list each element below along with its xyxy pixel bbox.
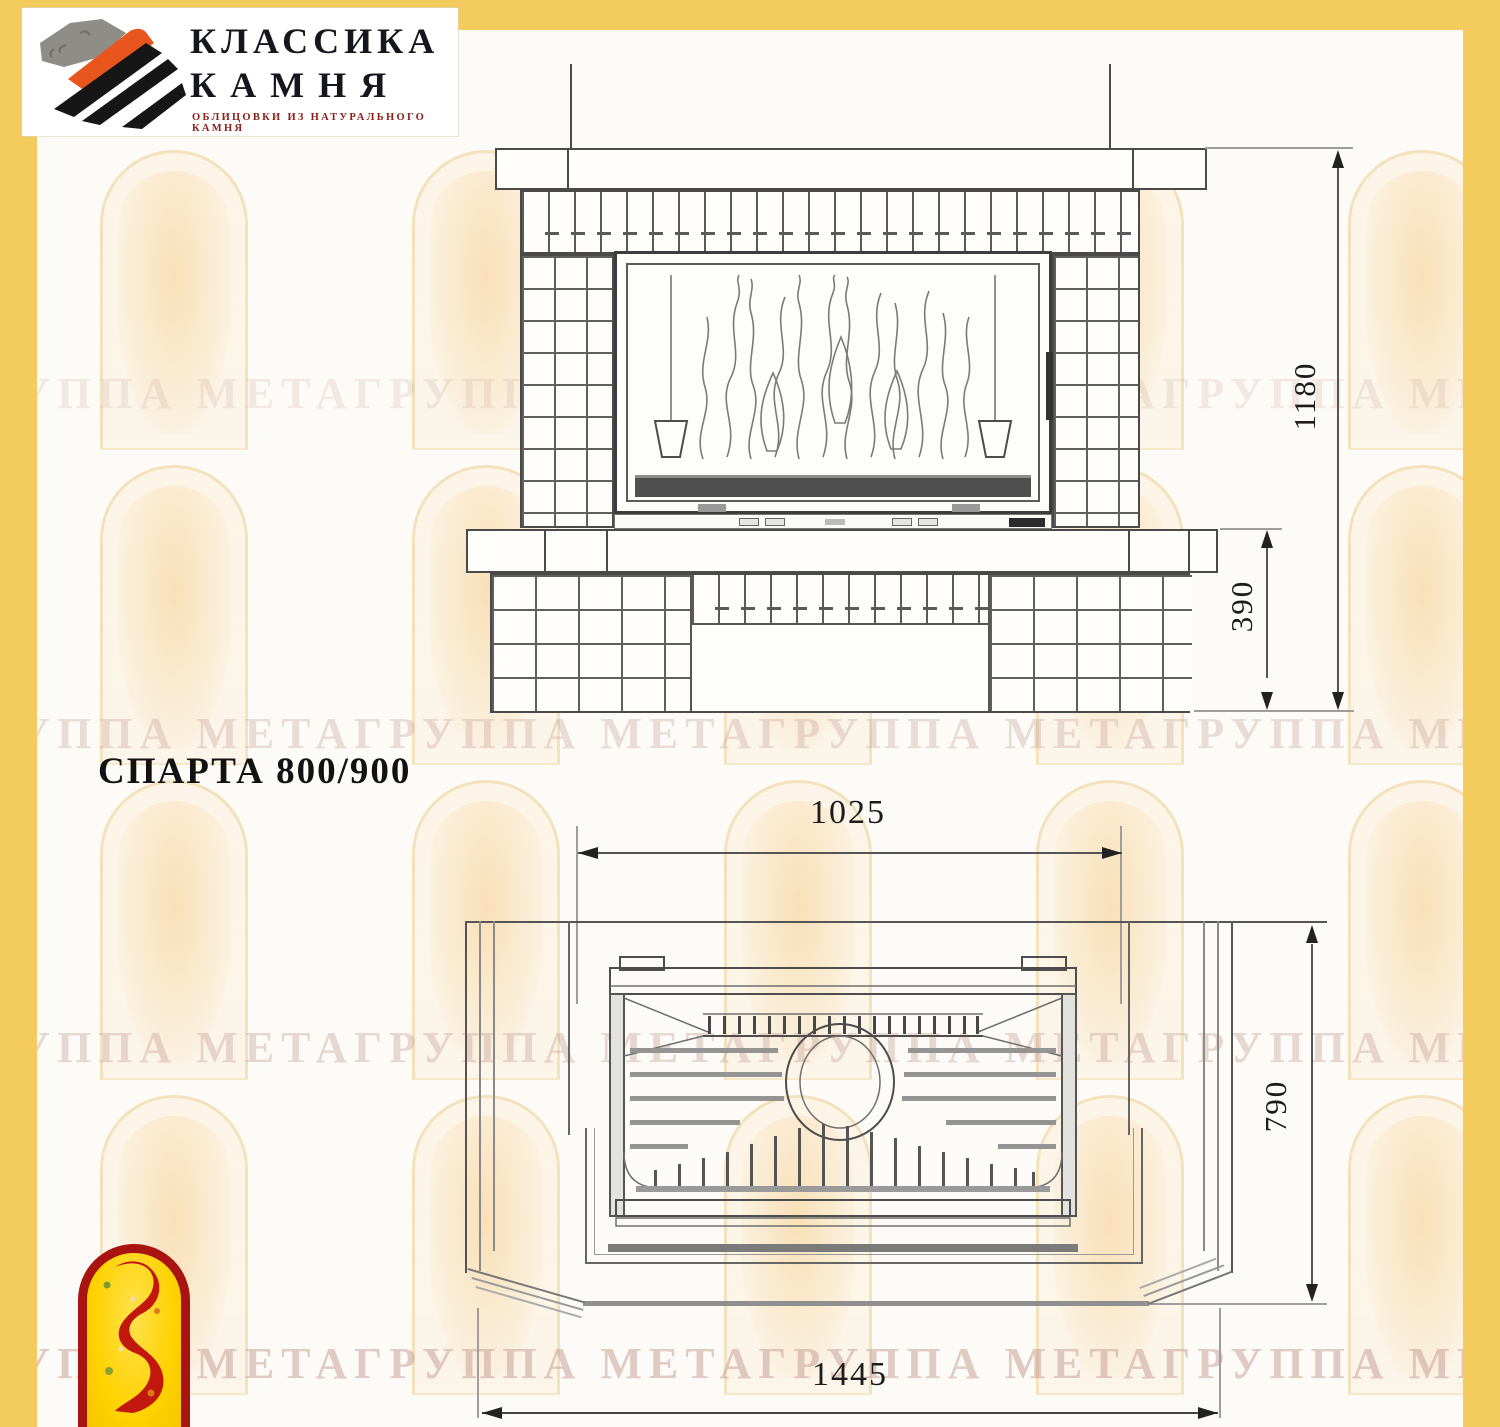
- brand-name-line1: КЛАССИКА: [190, 20, 439, 62]
- model-title: СПАРТА 800/900: [98, 750, 411, 793]
- plinth-soldier-band: [692, 575, 988, 625]
- door-glass: [647, 273, 1019, 465]
- extension-line: [477, 1308, 479, 1418]
- hearth-joint: [1128, 531, 1130, 571]
- insert-plan-drawing: [608, 956, 1078, 1256]
- arrowhead-right: [1198, 1407, 1218, 1419]
- grate-strip: [635, 475, 1031, 497]
- arrowhead-left: [578, 847, 598, 859]
- hearth-shelf: [466, 529, 1218, 573]
- arrowhead-left: [482, 1407, 502, 1419]
- flames-drawing: [647, 273, 1019, 465]
- arrowhead-up: [1306, 925, 1318, 943]
- chamfer-left: [475, 1286, 581, 1318]
- brick-column-left: [520, 254, 614, 528]
- dim-label-depth: 790: [1258, 1056, 1294, 1156]
- door-frame-tick: [952, 504, 980, 512]
- extension-line: [1194, 710, 1354, 712]
- grate-pins: [654, 1124, 1035, 1186]
- plinth-brick-right: [988, 575, 1192, 711]
- niche-wall-right: [1128, 921, 1130, 1135]
- mantel-shelf: [495, 148, 1207, 190]
- chimney-line-right: [1109, 64, 1111, 150]
- plan-left-inner-line: [493, 921, 495, 1251]
- vent-label-mark: [825, 519, 845, 525]
- door-frame-tick: [698, 504, 726, 512]
- arrowhead-down: [1332, 692, 1344, 710]
- wood-niche: [692, 625, 988, 711]
- dimension-line: [482, 1412, 1218, 1414]
- air-vent: [765, 518, 785, 526]
- plinth-brick-left: [492, 575, 692, 711]
- arrowhead-up: [1332, 150, 1344, 168]
- arrowhead-down: [1261, 692, 1273, 710]
- product-sheet: ГРУППА МЕТАГРУППА МЕТАГРУППА МЕТАГРУППА …: [0, 0, 1500, 1427]
- brand-name-line2: КАМНЯ: [190, 64, 400, 106]
- firebox-insert-plan: [608, 956, 1078, 1256]
- brick-column-right: [1052, 254, 1140, 528]
- extension-line: [1219, 1308, 1221, 1418]
- platform-front-edge: [583, 1301, 1149, 1306]
- meta-arch-logo: [78, 1244, 190, 1427]
- dimension-line: [1311, 944, 1313, 1284]
- niche-wall-left: [568, 921, 570, 1135]
- technical-drawing-layer: 1180 390 1025: [0, 0, 1500, 1427]
- rib-bars: [630, 1048, 1056, 1149]
- mantel-joint: [1132, 150, 1134, 188]
- plinth-base: [490, 573, 1190, 713]
- mantel-joint: [567, 150, 569, 188]
- chamfer-left: [467, 1268, 585, 1304]
- plan-right-inner-line: [1203, 921, 1205, 1251]
- plan-left-inner-line: [479, 921, 481, 1271]
- vent-band: [614, 514, 1052, 529]
- dim-label-portal-width: 1025: [748, 794, 948, 832]
- door-handle: [1046, 352, 1053, 420]
- arrowhead-right: [1102, 847, 1122, 859]
- hearth-joint: [606, 531, 608, 571]
- hearth-joint: [544, 531, 546, 571]
- extension-line: [1145, 1303, 1327, 1305]
- brand-tagline: ОБЛИЦОВКИ ИЗ НАТУРАЛЬНОГО КАМНЯ: [192, 112, 458, 134]
- air-vent: [739, 518, 759, 526]
- soldier-tile-band: [520, 190, 1140, 254]
- arrowhead-down: [1306, 1284, 1318, 1302]
- dimension-line: [1266, 548, 1268, 678]
- brand-logo-box: КЛАССИКА КАМНЯ ОБЛИЦОВКИ ИЗ НАТУРАЛЬНОГО…: [22, 8, 458, 136]
- meta-flame-figure: [87, 1253, 181, 1425]
- hearth-joint: [1188, 531, 1190, 571]
- firebox-door: [614, 251, 1052, 514]
- brand-badge: [1009, 518, 1045, 527]
- air-vent: [918, 518, 938, 526]
- dim-label-total-width: 1445: [750, 1356, 950, 1394]
- frame-bar-left: [0, 0, 37, 1427]
- plan-right-outer-edge: [1231, 921, 1233, 1273]
- plan-left-outer-edge: [465, 921, 467, 1273]
- dim-label-plinth-height: 390: [1224, 556, 1260, 656]
- extension-line: [1205, 147, 1353, 149]
- arrowhead-up: [1261, 530, 1273, 548]
- chamfer-left: [471, 1277, 583, 1311]
- brand-logo-mark: [30, 13, 190, 131]
- air-vent: [892, 518, 912, 526]
- frame-bar-right: [1463, 0, 1500, 1427]
- chimney-line-left: [570, 64, 572, 150]
- dim-label-height-total: 1180: [1287, 346, 1323, 446]
- plan-right-inner-line: [1217, 921, 1219, 1271]
- dimension-line: [578, 852, 1122, 854]
- plan-back-edge: [465, 921, 1327, 923]
- dimension-line: [1337, 165, 1339, 695]
